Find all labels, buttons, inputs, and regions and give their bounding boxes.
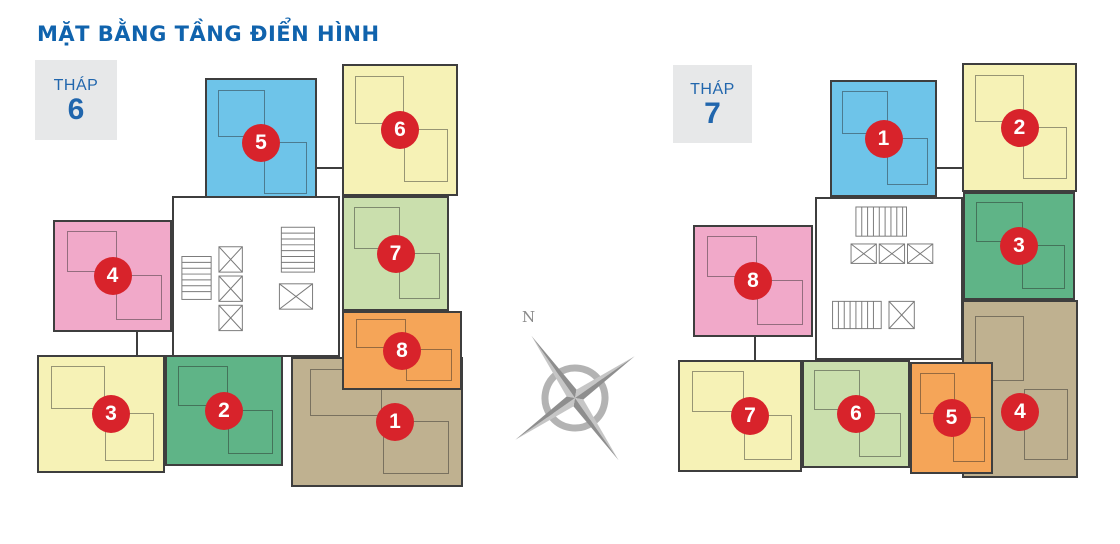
unit-region-t7-6: 6 [802,360,910,468]
unit-region-t6-6: 6 [342,64,458,196]
connector-line [317,167,342,169]
unit-region-t7-5: 5 [910,362,993,474]
stairs-icon [182,257,211,300]
stairs-icon [281,227,314,272]
unit-number-badge: 3 [92,395,130,433]
unit-region-t6-2: 2 [165,355,283,466]
unit-region-t7-8: 8 [693,225,813,337]
connector-line [754,337,756,360]
unit-number-badge: 5 [933,399,971,437]
tower-6-label: THÁP 6 [35,60,117,140]
unit-number-badge: 1 [376,403,414,441]
unit-number-badge: 2 [205,392,243,430]
unit-region-t6-5: 5 [205,78,317,207]
tower-7-label: THÁP 7 [673,65,752,143]
unit-number-badge: 6 [381,111,419,149]
compass-rose: N [500,300,650,480]
tower-6-core [172,196,340,357]
unit-region-t6-4: 4 [53,220,172,332]
stairs-icon [856,207,907,236]
compass-north-label: N [522,308,535,326]
unit-number-badge: 4 [1001,393,1039,431]
unit-region-t7-7: 7 [678,360,802,472]
unit-region-t6-7: 7 [342,196,449,311]
connector-line [136,332,138,355]
unit-region-t6-3: 3 [37,355,165,473]
elevator-icon [851,244,933,263]
connector-line [937,167,962,169]
unit-region-t6-8: 8 [342,311,462,390]
tower-6-label-word: THÁP [54,77,99,95]
unit-number-badge: 3 [1000,227,1038,265]
tower-7-label-number: 7 [704,100,721,128]
floor-plan-page: MẶT BẰNG TẦNG ĐIỂN HÌNH THÁP 6 1 2 3 4 5… [0,0,1120,544]
unit-number-badge: 1 [865,120,903,158]
unit-number-badge: 5 [242,124,280,162]
tower-7-label-word: THÁP [690,81,735,99]
unit-region-t7-2: 2 [962,63,1077,192]
unit-number-badge: 2 [1001,109,1039,147]
unit-number-badge: 8 [734,262,772,300]
stairs-icon [833,301,882,328]
core-plan-graphic [174,198,338,355]
tower-6-label-number: 6 [68,96,85,124]
unit-number-badge: 4 [94,257,132,295]
elevator-icon [219,247,242,331]
unit-region-t7-3: 3 [963,192,1075,300]
elevator-icon [889,301,914,328]
page-title: MẶT BẰNG TẦNG ĐIỂN HÌNH [37,22,380,46]
unit-region-t7-1: 1 [830,80,937,197]
compass-star-graphic [500,300,650,480]
unit-number-badge: 8 [383,332,421,370]
tower-7-core [815,197,963,360]
core-plan-graphic [817,199,961,358]
elevator-icon [279,284,312,309]
unit-number-badge: 7 [377,235,415,273]
unit-number-badge: 7 [731,397,769,435]
unit-number-badge: 6 [837,395,875,433]
